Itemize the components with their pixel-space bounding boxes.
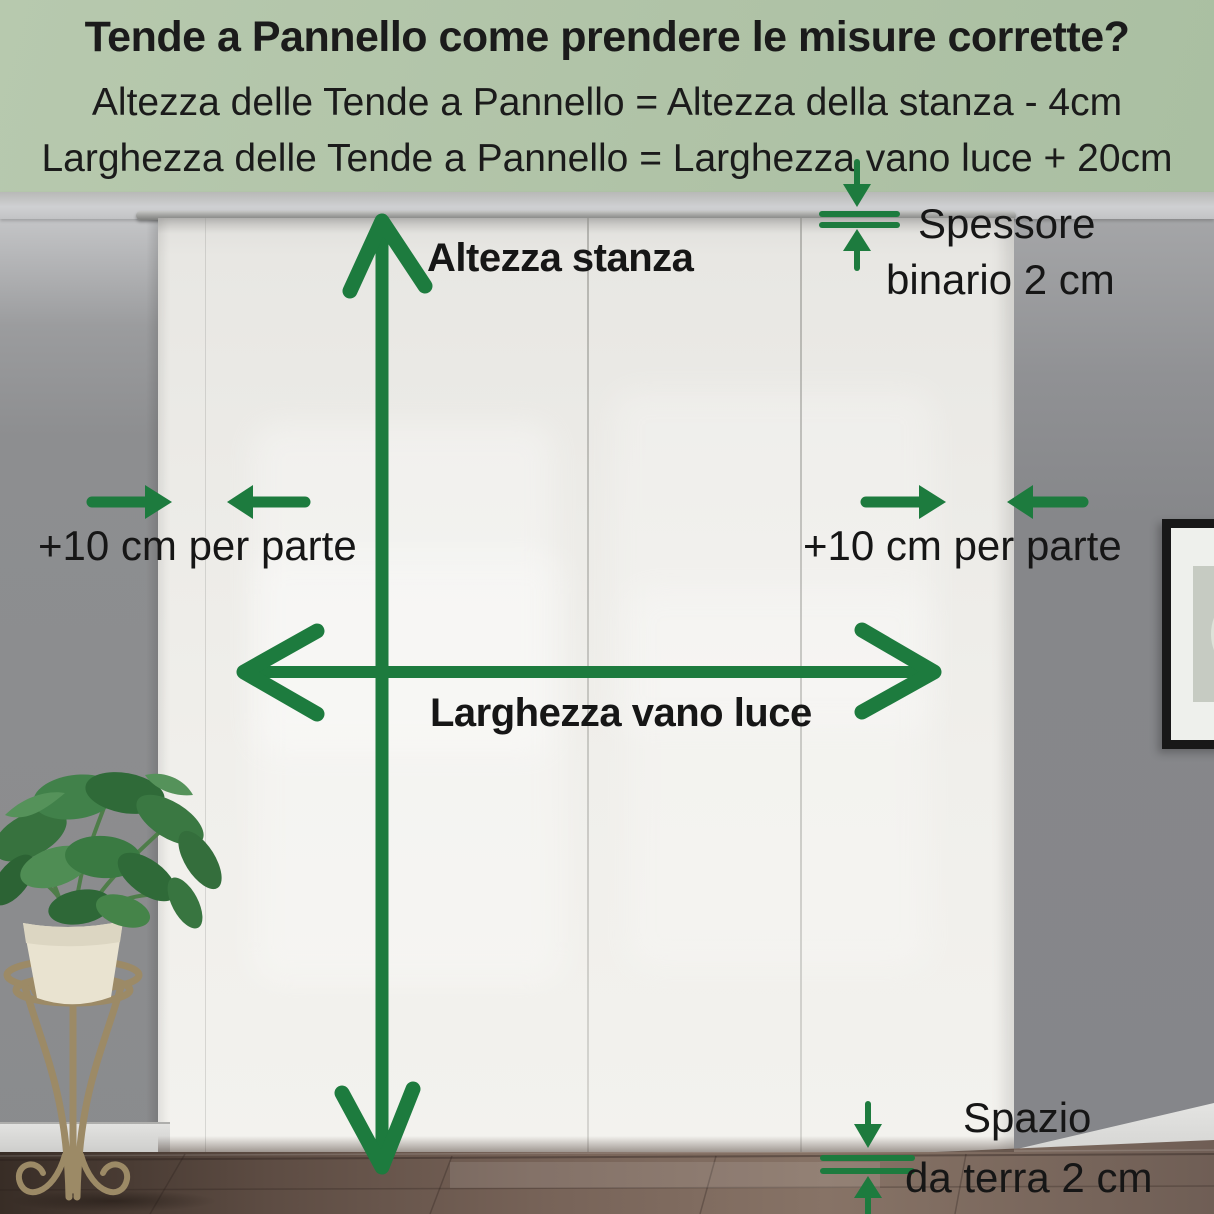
plant-pot [23, 921, 123, 1004]
room-height-label: Altezza stanza [427, 237, 693, 279]
panel-curtain-measuring-infographic: Tende a Pannello come prendere le misure… [0, 0, 1214, 1214]
picture-frame [1162, 519, 1214, 749]
floor-gap-label-line1: Spazio [963, 1096, 1091, 1140]
header-band: Tende a Pannello come prendere le misure… [0, 0, 1214, 192]
width-formula: Larghezza delle Tende a Pannello = Largh… [0, 138, 1214, 181]
panel-seam [800, 218, 802, 1160]
opening-width-label: Larghezza vano luce [430, 692, 812, 734]
potted-plant [0, 735, 265, 1214]
framed-artwork [1193, 566, 1214, 702]
rail-thickness-label-line2: binario 2 cm [886, 258, 1115, 302]
left-margin-label: +10 cm per parte [38, 524, 357, 568]
curtain-top-shadow [158, 218, 1014, 234]
curtain-light-patch [253, 553, 563, 983]
panel-seam [587, 218, 589, 1160]
rail-thickness-label-line1: Spessore [918, 202, 1095, 246]
height-formula: Altezza delle Tende a Pannello = Altezza… [0, 82, 1214, 125]
panel-curtains [158, 218, 1014, 1160]
curtain-light-patch [628, 588, 928, 968]
page-title: Tende a Pannello come prendere le misure… [0, 14, 1214, 61]
right-margin-label: +10 cm per parte [803, 524, 1122, 568]
plant-leaves [0, 766, 230, 934]
floor-gap-label-line2: da terra 2 cm [905, 1156, 1152, 1200]
curtain-floor-shadow [158, 1136, 1014, 1152]
